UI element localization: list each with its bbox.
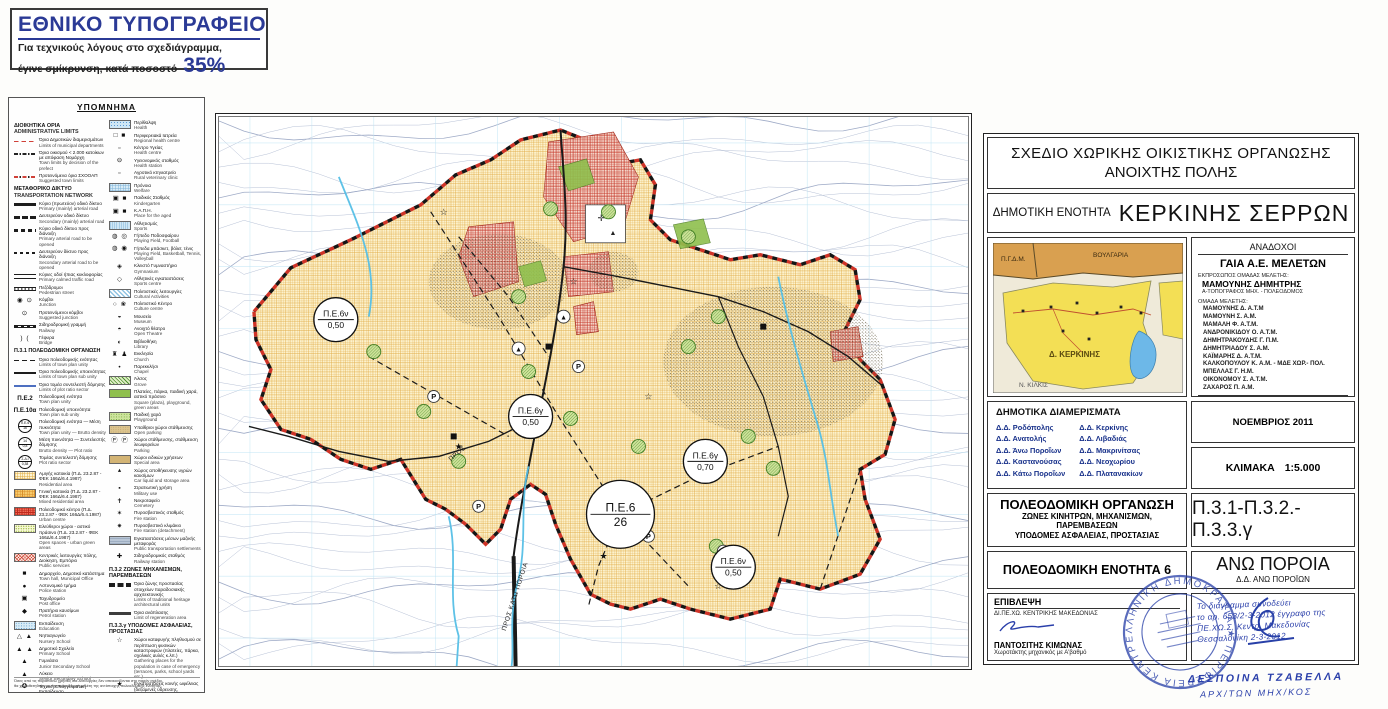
legend-section-header: Π.3.3.γ ΥΠΟΔΟΜΕΣ ΑΣΦΑΛΕΙΑΣ, ΠΡΟΣΤΑΣΙΑΣ [109,623,203,635]
legend-column-2: ΠερίθαλψηHealth□ ■Περιφερειακά ΙατρείαRe… [109,120,203,693]
legend-entry-label: Πρατήριο καυσίμωνPetrol station [39,608,79,618]
legend-entry: ◇Αθλητικές εγκαταστάσειςSports centre [109,276,203,286]
legend-symbol-sym-sqs: ▫ [109,145,131,153]
legend-entry: Π.Ε.616Πολεοδομική ενότητα — Μέση πυκνότ… [14,419,106,435]
legend-entry: ⊖Υγειονομικός σταθμόςHealth station [109,158,203,168]
legend-entry: ΠεζόδρομοιPedestrian street [14,285,106,295]
legend-entry-label: Υπαίθριοι χώροι στάθμευσηςOpen parking [134,425,193,435]
svg-text:P: P [576,362,581,371]
legend-entry: Κύριο οδικό δίκτυο προς διάνοιξηPrimary … [14,226,106,247]
legend-entry: Κεντρικές λειτουργίες πόλης, Διοίκηση, Ε… [14,553,106,569]
district-item: Δ.Δ. Ροδόπολης [996,422,1065,433]
urban-plan-map: ✛▲ PPPPP▲▲☆☆☆☆★★ Π.Ε.6ν0,50Π.Ε.6γ0,50Π.Ε… [219,117,968,666]
legend-entry-label: Κύριες οδοί ήπιας κυκλοφορίαςPrimary cal… [39,272,103,282]
legend-entry-label: ΠαρεκκλήσιChapel [134,364,158,374]
legend-entry-label: Χώροι καταφυγής πληθυσμού σε περίπτωση φ… [134,637,203,679]
legend-entry: ▫Αγροτικό κτηνιατρείοRural veterinary cl… [109,170,203,180]
legend-entry-label: Αγροτικό κτηνιατρείοRural veterinary cli… [134,170,178,180]
legend-symbol-sw-grove [109,376,131,385]
legend-entry: ◉ ⊙ΚόμβοιJunction [14,297,106,307]
legend-column-1: ΔΙΟΙΚΗΤΙΚΑ ΟΡΙΑADMINISTRATIVE LIMITSΌρια… [14,120,106,693]
legend-entry: ΠρόνοιαWelfare [109,183,203,193]
legend-symbol-sym-chapel: • [109,364,131,372]
legend-entry: ♜ ♟ΕκκλησίαChurch [109,351,203,361]
svg-text:☆: ☆ [644,391,652,401]
legend-entry-label: Κέντρο ΥγείαςHealth centre [134,145,163,155]
legend-entry: ✷Πυροσβεστικό κλιμάκιοFire station (deta… [109,523,203,533]
legend-entry-label: Πολιτιστικό ΚέντροCulture centre [134,301,172,311]
contractors-cell: ΑΝΑΔΟΧΟΙ ΓΑΙΑ Α.Ε. ΜΕΛΕΤΩΝ ΕΚΠΡΟΣΩΠΟΣ ΟΜ… [1191,237,1355,397]
legend-symbol-txt-Π-Ε-10α: Π.Ε.10α [14,407,36,415]
district-item: Δ.Δ. Καστανούσας [996,456,1065,467]
legend-entry-label: Εγκαταστάσεις μέσων μαζικής μεταφοράςPub… [134,536,203,552]
legend-entry: ▲ΓυμνάσιοJunior Secondary School [14,658,106,668]
legend-symbol-sw-centre [14,507,36,516]
legend-entry: Εγκαταστάσεις μέσων μαζικής μεταφοράςPub… [109,536,203,552]
legend-symbol-sw-cult [109,289,131,298]
team-member: ΔΗΜΗΤΡΙΑΔΟΥ Σ. Α.Μ. [1203,345,1348,353]
legend-entry: Ⓟ ⓅΧώροι στάθμευσης, στάθμευση λεωφορείω… [109,437,203,453]
team-member: ΖΑΧΑΡΟΣ Π. Α.Μ. [1203,384,1348,392]
legend-entry-label: Πλατείες, πάρκα, παιδική χαρά, αστικό πρ… [134,389,203,410]
district-item: Δ.Δ. Νεοχωρίου [1079,456,1143,467]
plan-title-cell: ΣΧΕΔΙΟ ΧΩΡΙΚΗΣ ΟΙΚΙΣΤΙΚΗΣ ΟΡΓΑΝΩΣΗΣ ΑΝΟΙ… [987,137,1355,189]
svg-text:Π.Ε.6γ: Π.Ε.6γ [518,405,544,415]
legend-symbol-pe-Σ-Δ-Ι-0-38: Σ.Δ.Ι0,38 [14,455,36,469]
legend-entry-label: ΠερίθαλψηHealth [134,120,156,130]
legend-symbol-ln-thick-dash [14,226,36,234]
legend-symbol-pe-14-0-8: 140,8 [14,437,36,451]
legend-symbol-pe-Π-Ε-6-16: Π.Ε.616 [14,419,36,433]
legend-entry: ◐ΒιβλιοθήκηLibrary [109,339,203,349]
reduction-percent: 35% [183,55,225,76]
legend-section-header: ΔΙΟΙΚΗΤΙΚΑ ΟΡΙΑADMINISTRATIVE LIMITS [14,123,106,135]
plan-sheet: ΕΘΝΙΚΟ ΤΥΠΟΓΡΑΦΕΙΟ Για τεχνικούς λόγους … [0,0,1388,709]
legend-symbol-sym-star: ☆ [109,637,131,645]
legend-entry-label: Χώροι ειδικών χρήσεωνSpecial area [134,455,183,465]
legend-entry-label: Όρια τομέα συντελεστή δόμησηςLimits of p… [39,382,105,392]
legend-entry-label: Πολεοδομικό κέντρο (Π.Δ. 23.2.87 - ΦΕΚ 1… [39,507,106,523]
legend-entry: Δευτερεύον οδικό δίκτυοSecondary (mainly… [14,213,106,223]
legend-entry-label: Μέση πυκνότητα — Συντελεστής δόμησηςBrut… [39,437,106,453]
legend-section-header: Π.3.1 ΠΟΛΕΟΔΟΜΙΚΗ ΟΡΓΑΝΩΣΗ [14,348,106,354]
legend-entry-label: Τομέας συντελεστή δόμησηςPlot ratio sect… [39,455,97,465]
district-item: Δ.Δ. Ανατολής [996,433,1065,444]
svg-text:Π.Ε.6ν: Π.Ε.6ν [323,309,348,319]
legend-symbol-sym-post: ▣ [14,596,36,604]
legend-entry: Όρια οικισμού < 2.000 κατοίκων με απόφασ… [14,150,106,171]
legend-entry: Χώροι ειδικών χρήσεωνSpecial area [109,455,203,465]
legend-entry-label: Πολεοδομική υποενότηταTown plan sub unit… [39,407,90,417]
legend-entry-label: Ελεύθεροι χώροι - αστικό πράσινο (Π.Δ. 2… [39,524,106,550]
legend-entry: Πολεοδομικό κέντρο (Π.Δ. 23.2.87 - ΦΕΚ 1… [14,507,106,523]
legend-symbol-ln-rail [14,322,36,330]
legend-symbol-sym-primary: ▲ ▲ [14,646,36,654]
legend-entry-label: Δευτερεύον οδικό δίκτυοSecondary (mainly… [39,213,104,223]
team-member: ΑΝΔΡΟΝΙΚΙΔΟΥ Ο. Α.Τ.Μ. [1203,329,1348,337]
scale-cell: ΚΛΙΜΑΚΑ 1:5.000 [1191,447,1355,489]
svg-text:Π.Ε.6: Π.Ε.6 [605,500,635,514]
legend-symbol-ln-dashdot [14,150,36,158]
location-inset-map: Π.Γ.Δ.Μ.ΒΟΥΛΓΑΡΙΑΔ. ΚΕΡΚΙΝΗΣΝ. ΚΙΛΚΙΣ [987,237,1187,397]
legend-entry-label: ΤαχυδρομείοPost office [39,596,65,606]
scale-value: 1:5.000 [1285,462,1321,474]
team-member: ΔΗΜΗΤΡΑΚΟΥΔΗΣ Γ. Π.Μ. [1203,337,1348,345]
legend-symbol-sym-mus: ◒ [109,314,131,322]
legend-entry: Κύριες οδοί ήπιας κυκλοφορίαςPrimary cal… [14,272,106,282]
map-frame: ✛▲ PPPPP▲▲☆☆☆☆★★ Π.Ε.6ν0,50Π.Ε.6γ0,50Π.Ε… [215,113,972,670]
district-item: Δ.Δ. Λιβαδιάς [1079,433,1143,444]
legend-entry: Πλατείες, πάρκα, παιδική χαρά, αστικό πρ… [109,389,203,410]
legend-entry-label: Κύριο (πρωτεύον) οδικό δίκτυοPrimary (ma… [39,201,102,211]
drawing-code-cell: Π.3.1-Π.3.2.-Π.3.3.γ [1191,493,1355,547]
legend-entry-label: Κύριο οδικό δίκτυο προς διάνοιξηPrimary … [39,226,106,247]
svg-text:Π.Ε.6γ: Π.Ε.6γ [693,450,719,460]
legend-symbol-sym-police: ● [14,583,36,591]
legend-entry-label: Υγειονομικός σταθμόςHealth station [134,158,179,168]
legend-symbol-ln-blue2 [14,382,36,390]
legend-symbol-sw-sport [109,221,131,230]
legend-footnote: Όσες από τις παραπάνω χρήσεις και λειτου… [14,677,200,689]
legend-entry: ✝ΝεκροταφείοCemetery [109,498,203,508]
org-title: ΠΟΛΕΟΔΟΜΙΚΗ ΟΡΓΑΝΩΣΗ [988,497,1186,512]
legend-symbol-sym-rails: ✚ [109,553,131,561]
team-member: ΜΠΕΛΛΑΣ Γ. Η.Μ. [1203,368,1348,376]
legend-symbol-sym-bridge: ) ( [14,335,36,343]
legend-symbol-sym-church: ♜ ♟ [109,351,131,359]
legend-symbol-sw-trans [109,536,131,545]
legend-entry: Πολιτιστικές λειτουργίεςCultural Activit… [109,289,203,299]
team-member: ΜΑΜΟΥΝΗΣ Δ. Α.Τ.Μ [1203,305,1348,313]
svg-text:P: P [431,392,436,401]
legend-entry: Προτεινόμενα όρια ΣΧΟΟΑΠSuggested town l… [14,173,106,183]
contractor-2: DELCO Ε.Π.Ε. [1198,395,1348,397]
svg-text:☆: ☆ [440,207,448,217]
legend-section-header: ΜΕΤΑΦΟΡΙΚΟ ΔΙΚΤΥΟTRANSPORTATION NETWORK [14,186,106,198]
legend-entry: ◍ ◎Γήπεδο ΠοδοσφαίρουPlaying Field, Foot… [109,233,203,243]
legend-symbol-sym-lib: ◐ [109,339,131,347]
legend-entry-label: ΆλσοςGrove [134,376,147,386]
legend-entry-label: Πυροσβεστικός σταθμόςFire station [134,510,184,520]
svg-text:Ν. ΚΙΛΚΙΣ: Ν. ΚΙΛΚΙΣ [1019,382,1048,389]
legend-symbol-sym-basket: ◍ ◉ [109,246,131,254]
legend-symbol-sw-green [109,389,131,398]
legend-entry: Π.Ε.10αΠολεοδομική υποενότηταTown plan s… [14,407,106,417]
legend-symbol-txt-Π-Ε-2: Π.Ε.2 [14,394,36,402]
legend-entry: Κύριο (πρωτεύον) οδικό δίκτυοPrimary (ma… [14,201,106,211]
legend-entry-label: Παιδική χαράPlayground [134,412,161,422]
svg-text:Δ. ΚΕΡΚΙΝΗΣ: Δ. ΚΕΡΚΙΝΗΣ [1049,350,1100,359]
legend-entry-label: Όρια πολεοδομικής υποενότηταςLimits of t… [39,369,106,379]
legend-entry-label: ΕκκλησίαChurch [134,351,153,361]
legend-symbol-sym-junc2: ⊙ [14,310,36,318]
legend-entry-label: ΑθλητισμόςSports [134,221,157,231]
representative-name: ΜΑΜΟΥΝΗΣ ΔΗΜΗΤΡΗΣ [1202,279,1348,289]
legend-symbol-sym-2sq: □ ■ [109,133,131,141]
legend-symbol-sw-welf [109,183,131,192]
legend-symbol-sym-foot: ◍ ◎ [109,233,131,241]
representative-title: Α-ΤΟΠΟΓΡΑΦΟΣ ΜΗΧ. - ΠΟΛΕΟΔΟΜΟΣ [1202,289,1348,295]
legend-symbol-sw-park [109,425,131,434]
legend-symbol-ln-thick2 [14,213,36,221]
legend-entry: □ ■Περιφερειακά ΙατρείαRegional health c… [109,133,203,143]
legend-symbol-sw-play [109,412,131,421]
legend-symbol-sym-mil: ▪ [109,485,131,493]
legend-entry-label: Προτεινόμενα όρια ΣΧΟΟΑΠSuggested town l… [39,173,98,183]
legend-entry-label: Όρια ανάπλασηςLimit of regeneration area [134,610,186,620]
legend-entry: Όρια πολεοδομικής υποενότηταςLimits of t… [14,369,106,379]
svg-text:☆: ☆ [570,277,578,287]
municipal-unit-cell: ΔΗΜΟΤΙΚΗ ΕΝΟΤΗΤΑ ΚΕΡΚΙΝΗΣ ΣΕΡΡΩΝ [987,193,1355,233]
legend-symbol-sw-spec [109,455,131,464]
legend-entry-label: Δημοτικό ΣχολείοPrimary School [39,646,74,656]
legend-entry: Όρια Δημοτικών διαμερισμάτωνLimits of mu… [14,137,106,147]
legend-entry: Παιδική χαράPlayground [109,412,203,422]
legend-title: ΥΠΟΜΝΗΜΑ [9,102,204,112]
legend-entry-label: Προτεινόμενοι κόμβοιSuggested junction [39,310,83,320]
district-item: Δ.Δ. Πλατανακίων [1079,468,1143,479]
team-member: ΜΑΜΑΛΗ Φ. Α.Τ.Μ. [1203,321,1348,329]
svg-text:Π.Γ.Δ.Μ.: Π.Γ.Δ.Μ. [1001,256,1026,263]
municipal-unit-label: ΔΗΜΟΤΙΚΗ ΕΝΟΤΗΤΑ [993,207,1111,219]
legend-symbol-sym-hs: ⊖ [109,158,131,166]
legend-entry: ✶Πυροσβεστικός σταθμόςFire station [109,510,203,520]
svg-text:26: 26 [614,515,628,529]
map-canvas: ✛▲ PPPPP▲▲☆☆☆☆★★ Π.Ε.6ν0,50Π.Ε.6γ0,50Π.Ε… [218,116,969,667]
legend-entry-label: Χώρος αποθήκευσης υγρών καυσίμωνCar liqu… [134,468,203,484]
contractor-1: ΓΑΙΑ Α.Ε. ΜΕΛΕΤΩΝ [1198,254,1348,270]
svg-text:0,70: 0,70 [697,462,714,472]
districts-column-1: Δ.Δ. ΡοδόποληςΔ.Δ. ΑνατολήςΔ.Δ. Άνω Πορο… [996,422,1065,479]
legend-entry: ▣ ■Παιδικός ΣταθμόςKindergarten [109,195,203,205]
legend-entry-label: Παιδικός ΣταθμόςKindergarten [134,195,170,205]
legend-entry-label: Πυροσβεστικό κλιμάκιοFire station (detac… [134,523,185,533]
legend-symbol-sym-vet: ▫ [109,170,131,178]
team-member: ΚΑΛΚΟΠΟΥΛΟΥ Κ. Α.Μ. - ΜΔΕ ΧΩΡ.- ΠΟΛ. [1203,360,1348,368]
legend-entry: Υπαίθριοι χώροι στάθμευσηςOpen parking [109,425,203,435]
legend-symbol-sym-fuel2: ▴ [109,468,131,476]
legend-entry-label: Ανοιχτό θέατροOpen Theatre [134,326,165,336]
legend-entry-label: ΚόμβοιJunction [39,297,56,307]
legend-symbol-ln-solid [14,369,36,377]
legend-entry-label: ΜουσείοMuseum [134,314,152,324]
legend-symbol-sym-fire: ✶ [109,510,131,518]
legend-entry-label: Δημαρχείο, Δημοτικό κατάστημαTown hall, … [39,571,104,581]
legend-symbol-sw-health [109,120,131,129]
legend-entry-label: Πολιτιστικές λειτουργίεςCultural Activit… [134,289,182,299]
legend-symbol-sym-hall: ■ [14,571,36,579]
legend-entry: Σ.Δ.Ι0,38Τομέας συντελεστή δόμησηςPlot r… [14,455,106,469]
svg-text:Π.Ε.6ν: Π.Ε.6ν [721,556,746,566]
svg-text:▲: ▲ [560,314,567,321]
legend-entry: 140,8Μέση πυκνότητα — Συντελεστής δόμηση… [14,437,106,453]
legend-entry: Δευτερεύον δίκτυο προς διάνοιξηSecondary… [14,249,106,270]
legend-symbol-sym-kapi: ▣ ■ [109,208,131,216]
svg-text:0,50: 0,50 [328,320,345,330]
svg-text:★: ★ [599,551,607,561]
legend-symbol-ln-ped [14,285,36,293]
legend-entry: ▣ΤαχυδρομείοPost office [14,596,106,606]
legend-symbol-sym-gymn: ◈ [109,263,131,271]
legend-entry: ΕκπαίδευσηEducation [14,621,106,631]
legend-entry: Όρια πολεοδομικής ενότηταςLimits of town… [14,357,106,367]
legend-entry-label: Αστυνομικό τμήμαPolice station [39,583,76,593]
printing-office-title: ΕΘΝΙΚΟ ΤΥΠΟΓΡΑΦΕΙΟ [18,13,260,40]
contractors-label: ΑΝΑΔΟΧΟΙ [1198,242,1348,252]
reduction-stamp-box: ΕΘΝΙΚΟ ΤΥΠΟΓΡΑΦΕΙΟ Για τεχνικούς λόγους … [10,8,268,70]
svg-text:▲: ▲ [609,230,616,237]
supervisor-signature [994,618,1064,634]
legend-symbol-sym-junc: ◉ ⊙ [14,297,36,305]
legend-entry: ▫Κέντρο ΥγείαςHealth centre [109,145,203,155]
legend-entry: •ΠαρεκκλήσιChapel [109,364,203,374]
legend-entry-label: Γήπεδο ΠοδοσφαίρουPlaying Field, Footbal… [134,233,179,243]
svg-text:▲: ▲ [515,346,522,353]
legend-symbol-ln-double [14,272,36,280]
legend-entry-label: Όρια οικισμού < 2.000 κατοίκων με απόφασ… [39,150,106,171]
org-sub1: ΖΩΝΕΣ ΚΙΝΗΤΡΩΝ, ΜΗΧΑΝΙΣΜΩΝ, [988,512,1186,521]
legend-entry: ●Αστυνομικό τμήμαPolice station [14,583,106,593]
legend-entry-label: ΓυμνάσιοJunior Secondary School [39,658,90,668]
team-list: ΜΑΜΟΥΝΗΣ Δ. Α.Τ.ΜΜΑΜΟΥΝΗ Σ. Α.Μ.ΜΑΜΑΛΗ Φ… [1203,305,1348,392]
legend-entry: Όρια ανάπλασηςLimit of regeneration area [109,610,203,620]
team-member: ΜΑΜΟΥΝΗ Σ. Α.Μ. [1203,313,1348,321]
legend-entry: Όρια ζώνης προστασίας στοιχείων παραδοσι… [109,581,203,607]
legend-entry: ◓Ανοιχτό θέατροOpen Theatre [109,326,203,336]
legend-entry: △ ▲ΝηπιαγωγείοNursery School [14,633,106,643]
plan-title-line2: ΑΝΟΙΧΤΗΣ ΠΟΛΗΣ [988,164,1354,181]
legend-entry-label: Όρια πολεοδομικής ενότηταςLimits of town… [39,357,98,367]
legend-entry-label: Κεντρικές λειτουργίες πόλης, Διοίκηση, Ε… [39,553,106,569]
legend-entry: Όρια τομέα συντελεστή δόμησηςLimits of p… [14,382,106,392]
municipal-unit-value: ΚΕΡΚΙΝΗΣ ΣΕΡΡΩΝ [1119,200,1350,227]
districts-cell: ΔΗΜΟΤΙΚΑ ΔΙΑΜΕΡΙΣΜΑΤΑ Δ.Δ. ΡοδόποληςΔ.Δ.… [987,401,1187,489]
inset-map-svg: Π.Γ.Δ.Μ.ΒΟΥΛΓΑΡΙΑΔ. ΚΕΡΚΙΝΗΣΝ. ΚΙΛΚΙΣ [993,243,1183,393]
legend-entry: ■Δημαρχείο, Δημοτικό κατάστημαTown hall,… [14,571,106,581]
legend-symbol-ln-red-dashdot [14,173,36,181]
legend-entry-label: ΠρόνοιαWelfare [134,183,151,193]
legend-symbol-sw-open [14,524,36,533]
legend-entry-label: Όρια ζώνης προστασίας στοιχείων παραδοσι… [134,581,203,607]
legend-entry-label: Γήπεδα μπάσκετ, βόλεϊ, τένιςPlaying Fiel… [134,246,203,262]
legend-entry: ▣ ■Κ.Α.Π.Η.Place for the aged [109,208,203,218]
legend-entry-label: Σιδηροδρομικός σταθμόςRailway station [134,553,185,563]
svg-text:P: P [476,502,481,511]
org-sub2: ΠΑΡΕΜΒΑΣΕΩΝ [988,521,1186,530]
legend-entry: ☆Χώροι καταφυγής πληθυσμού σε περίπτωση … [109,637,203,679]
org-sub3: ΥΠΟΔΟΜΕΣ ΑΣΦΑΛΕΙΑΣ, ΠΡΟΣΤΑΣΙΑΣ [988,531,1186,540]
scale-label: ΚΛΙΜΑΚΑ [1226,462,1275,474]
legend-entry: ΆλσοςGrove [109,376,203,386]
legend-entry: ◆Πρατήριο καυσίμωνPetrol station [14,608,106,618]
legend-symbol-ln-red-dash [14,137,36,145]
legend-symbol-sym-gym: ▲ [14,658,36,666]
legend-symbol-ln-dash3 [14,357,36,365]
team-member: ΟΙΚΟΝΟΜΟΥ Σ. Α.Τ.Μ. [1203,376,1348,384]
legend-entry: Αμιγής κατοικία (Π.Δ. 23.2.87 - ΦΕΚ 166Δ… [14,471,106,487]
signature-name: ΔΕΣΠΟΙΝΑ ΤΖΑΒΕΛΛΑ [1188,671,1344,686]
districts-column-2: Δ.Δ. ΚερκίνηςΔ.Δ. ΛιβαδιάςΔ.Δ. Μακρινίτσ… [1079,422,1143,479]
legend-entry-label: Πολεοδομική ενότηταTown plan unity [39,394,82,404]
legend-entry: ○ ❀Πολιτιστικό ΚέντροCulture centre [109,301,203,311]
legend-entry-label: Κλειστό ΓυμναστήριοGymnasium [134,263,177,273]
legend-entry: Ελεύθεροι χώροι - αστικό πράσινο (Π.Δ. 2… [14,524,106,550]
date-cell: ΝΟΕΜΒΡΙΟΣ 2011 [1191,401,1355,443]
legend-entry-label: Περιφερειακά ΙατρείαRegional health cent… [134,133,180,143]
svg-text:0,50: 0,50 [725,568,742,578]
legend-symbol-sym-fire2: ✷ [109,523,131,531]
legend-entry-label: ΕκπαίδευσηEducation [39,621,64,631]
organization-cell: ΠΟΛΕΟΔΟΜΙΚΗ ΟΡΓΑΝΩΣΗ ΖΩΝΕΣ ΚΙΝΗΤΡΩΝ, ΜΗΧ… [987,493,1187,547]
legend-entry: Γενική κατοικία (Π.Δ. 23.2.87 - ΦΕΚ 166Δ… [14,489,106,505]
districts-label: ΔΗΜΟΤΙΚΑ ΔΙΑΜΕΡΙΣΜΑΤΑ [996,407,1178,418]
district-item: Δ.Δ. Κερκίνης [1079,422,1143,433]
reduction-note-line2: έγινε σμίκρυνση, κατά ποσοστό [18,63,177,76]
legend-entry: Σιδηροδρομική γραμμήRailway [14,322,106,332]
district-item: Δ.Δ. Μακρινίτσας [1079,445,1143,456]
legend-entry: ▴Χώρος αποθήκευσης υγρών καυσίμωνCar liq… [109,468,203,484]
legend-entry-label: Δευτερεύον δίκτυο προς διάνοιξηSecondary… [39,249,106,270]
legend-entry-label: Αμιγής κατοικία (Π.Δ. 23.2.87 - ΦΕΚ 166Δ… [39,471,106,487]
legend-entry-label: Γενική κατοικία (Π.Δ. 23.2.87 - ΦΕΚ 166Δ… [39,489,106,505]
legend-symbol-sym-kg: ▣ ■ [109,195,131,203]
team-member: ΚΑΪΜΑΡΗΣ Δ. Α.Τ.Μ. [1203,353,1348,361]
district-item: Δ.Δ. Κάτω Ποροΐων [996,468,1065,479]
legend-entry: ⊙Προτεινόμενοι κόμβοιSuggested junction [14,310,106,320]
legend-symbol-sym-cc: ○ ❀ [109,301,131,309]
approver-signature [1228,592,1308,652]
legend-symbol-sym-nursery: △ ▲ [14,633,36,641]
legend-symbol-sw-edu [14,621,36,630]
legend-entry-label: Σιδηροδρομική γραμμήRailway [39,322,86,332]
legend-entry: ▪Στρατιωτική χρήσηMilitary use [109,485,203,495]
legend-entry: ▲ ▲Δημοτικό ΣχολείοPrimary School [14,646,106,656]
legend-symbol-ln-regen [109,610,131,618]
district-item: Δ.Δ. Άνω Ποροΐων [996,445,1065,456]
legend-symbol-sym-fuel: ◆ [14,608,36,616]
legend-entry: ΑθλητισμόςSports [109,221,203,231]
legend-symbol-sw-mixed [14,489,36,498]
legend-entry-label: ΓέφυραBridge [39,335,54,345]
legend-panel: ΥΠΟΜΝΗΜΑ ΔΙΟΙΚΗΤΙΚΑ ΟΡΙΑADMINISTRATIVE L… [8,97,205,693]
legend-symbol-sw-serv [14,553,36,562]
legend-symbol-ln-thick [14,201,36,209]
legend-symbol-sym-cem: ✝ [109,498,131,506]
legend-symbol-sym-th: ◓ [109,326,131,334]
legend-entry: ◒ΜουσείοMuseum [109,314,203,324]
legend-entry: ) (ΓέφυραBridge [14,335,106,345]
legend-entry-label: ΠεζόδρομοιPedestrian street [39,285,74,295]
legend-entry-label: ΝηπιαγωγείοNursery School [39,633,70,643]
legend-symbol-ln-dash2 [14,249,36,257]
legend-entry-label: Αθλητικές εγκαταστάσειςSports centre [134,276,184,286]
svg-text:ΒΟΥΛΓΑΡΙΑ: ΒΟΥΛΓΑΡΙΑ [1093,252,1129,259]
legend-entry: ◍ ◉Γήπεδα μπάσκετ, βόλεϊ, τένιςPlaying F… [109,246,203,262]
legend-entry-label: ΒιβλιοθήκηLibrary [134,339,157,349]
legend-entry-label: Κ.Α.Π.Η.Place for the aged [134,208,171,218]
legend-symbol-sw-res [14,471,36,480]
legend-symbol-ln-herit [109,581,131,589]
svg-text:0,50: 0,50 [522,417,539,427]
legend-entry-label: Όρια Δημοτικών διαμερισμάτωνLimits of mu… [39,137,104,147]
legend-section-header: Π.3.2 ΖΩΝΕΣ ΜΗΧΑΝΙΣΜΩΝ, ΠΑΡΕΜΒΑΣΕΩΝ [109,567,203,579]
legend-entry-label: Πολεοδομική ενότητα — Μέση πυκνότηταTown… [39,419,106,435]
legend-symbol-sym-sportc: ◇ [109,276,131,284]
legend-symbol-sym-p2: Ⓟ Ⓟ [109,437,131,445]
legend-entry-label: Χώροι στάθμευσης, στάθμευση λεωφορείωνPa… [134,437,203,453]
legend-entry: ✚Σιδηροδρομικός σταθμόςRailway station [109,553,203,563]
legend-entry: ◈Κλειστό ΓυμναστήριοGymnasium [109,263,203,273]
